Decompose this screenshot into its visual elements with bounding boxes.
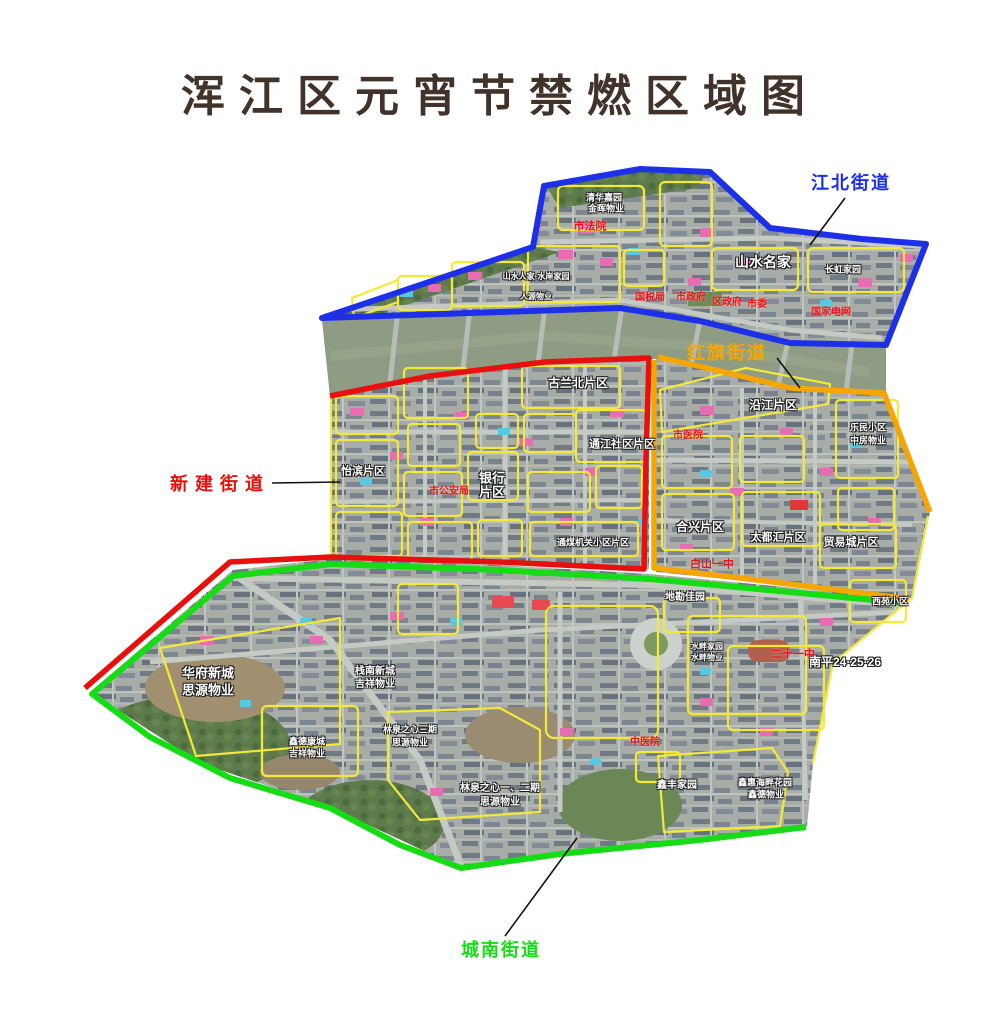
- district-map: [0, 0, 1000, 1015]
- xinjian-leader-line: [272, 482, 340, 483]
- page: 浑江区元宵节禁燃区域图: [0, 0, 1000, 1015]
